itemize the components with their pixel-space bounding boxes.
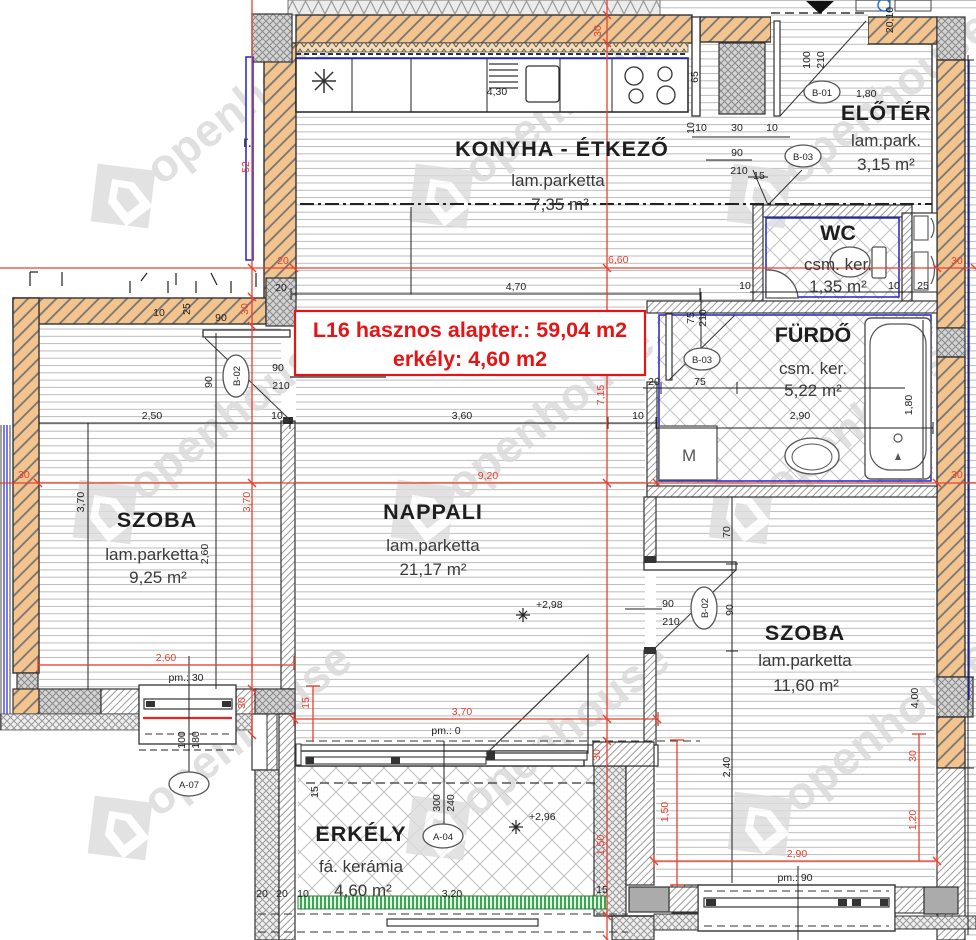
svg-text:KONYHA - ÉTKEZŐ: KONYHA - ÉTKEZŐ xyxy=(455,136,669,161)
svg-text:10: 10 xyxy=(888,280,900,292)
svg-text:csm. ker.: csm. ker. xyxy=(779,359,847,378)
svg-text:4,60 m²: 4,60 m² xyxy=(334,881,392,900)
svg-text:lam.parketta: lam.parketta xyxy=(758,651,852,670)
svg-text:2,50: 2,50 xyxy=(142,410,163,422)
svg-text:90: 90 xyxy=(731,147,743,159)
svg-text:15: 15 xyxy=(300,697,312,709)
svg-text:erkély: 4,60 m2: erkély: 4,60 m2 xyxy=(393,347,547,371)
svg-text:M: M xyxy=(682,446,696,465)
svg-text:90: 90 xyxy=(272,362,284,374)
svg-text:30: 30 xyxy=(236,697,248,709)
svg-text:1,35 m²: 1,35 m² xyxy=(809,277,867,296)
svg-text:fá. kerámia: fá. kerámia xyxy=(319,857,404,876)
svg-text:4,70: 4,70 xyxy=(506,281,527,293)
svg-text:3,70: 3,70 xyxy=(452,706,473,718)
svg-text:9,20: 9,20 xyxy=(478,470,499,482)
svg-text:5,22 m²: 5,22 m² xyxy=(784,381,842,400)
svg-text:4,00: 4,00 xyxy=(909,688,921,709)
svg-text:2,90: 2,90 xyxy=(790,410,811,422)
svg-text:1,50: 1,50 xyxy=(595,835,607,856)
svg-text:70: 70 xyxy=(721,526,733,538)
svg-text:FÜRDŐ: FÜRDŐ xyxy=(775,322,851,347)
svg-text:65: 65 xyxy=(689,71,701,83)
svg-text:ELŐTÉR: ELŐTÉR xyxy=(841,100,931,125)
svg-text:25: 25 xyxy=(181,303,193,315)
svg-text:75: 75 xyxy=(685,312,697,324)
svg-text:75: 75 xyxy=(694,376,706,388)
svg-text:SZOBA: SZOBA xyxy=(765,621,845,645)
svg-text:20: 20 xyxy=(275,282,287,294)
svg-text:A-04: A-04 xyxy=(433,832,453,843)
svg-text:52: 52 xyxy=(240,161,252,173)
svg-text:9,25 m²: 9,25 m² xyxy=(129,568,187,587)
svg-text:r.: r. xyxy=(243,134,252,151)
svg-text:10: 10 xyxy=(271,410,283,422)
svg-text:B-03: B-03 xyxy=(692,355,712,366)
svg-text:20: 20 xyxy=(648,376,660,388)
svg-text:lam.parketta: lam.parketta xyxy=(511,171,605,190)
svg-text:3,20: 3,20 xyxy=(442,888,463,900)
svg-text:pm.: 0: pm.: 0 xyxy=(431,725,460,737)
svg-text:30: 30 xyxy=(907,750,919,762)
svg-text:B-02: B-02 xyxy=(232,366,243,386)
svg-text:+2,98: +2,98 xyxy=(536,599,563,611)
svg-text:3,70: 3,70 xyxy=(241,492,253,513)
svg-text:4,30: 4,30 xyxy=(487,86,508,98)
svg-text:7,35 m²: 7,35 m² xyxy=(531,195,589,214)
svg-text:lam.park.: lam.park. xyxy=(851,131,921,150)
svg-text:6,60: 6,60 xyxy=(608,254,629,266)
svg-text:1,50: 1,50 xyxy=(659,802,671,823)
svg-text:30: 30 xyxy=(731,122,743,134)
svg-text:20: 20 xyxy=(277,255,289,267)
svg-text:2,90: 2,90 xyxy=(787,848,808,860)
svg-text:180: 180 xyxy=(190,731,202,749)
svg-text:210: 210 xyxy=(697,309,709,327)
svg-text:25: 25 xyxy=(917,280,929,292)
svg-text:10: 10 xyxy=(632,410,644,422)
svg-text:30: 30 xyxy=(18,469,30,481)
svg-text:90: 90 xyxy=(662,598,674,610)
svg-text:210: 210 xyxy=(730,165,748,177)
svg-text:90: 90 xyxy=(203,376,215,388)
svg-text:30: 30 xyxy=(239,303,251,315)
svg-text:2,60: 2,60 xyxy=(199,544,211,565)
svg-text:pm.: 90: pm.: 90 xyxy=(777,872,812,884)
svg-text:2,60: 2,60 xyxy=(156,652,177,664)
svg-text:90: 90 xyxy=(724,604,736,616)
svg-text:1,20: 1,20 xyxy=(907,810,919,831)
svg-text:SZOBA: SZOBA xyxy=(117,508,197,532)
svg-text:10: 10 xyxy=(739,280,751,292)
svg-text:L16 hasznos alapter.: 59,04 m2: L16 hasznos alapter.: 59,04 m2 xyxy=(313,318,627,342)
svg-text:NAPPALI: NAPPALI xyxy=(383,500,483,524)
svg-text:1,80: 1,80 xyxy=(856,88,877,100)
svg-text:20,10: 20,10 xyxy=(884,7,896,33)
svg-text:15: 15 xyxy=(309,786,321,798)
svg-text:+2,96: +2,96 xyxy=(529,811,556,823)
svg-text:B-01: B-01 xyxy=(812,88,832,99)
svg-text:3,15 m²: 3,15 m² xyxy=(857,155,915,174)
svg-text:15: 15 xyxy=(596,884,608,896)
svg-text:90: 90 xyxy=(215,312,227,324)
svg-text:240: 240 xyxy=(445,794,457,812)
svg-text:20: 20 xyxy=(256,888,268,900)
svg-text:csm. ker.: csm. ker. xyxy=(804,255,872,274)
svg-text:20: 20 xyxy=(276,888,288,900)
svg-text:210: 210 xyxy=(662,616,680,628)
svg-text:3,60: 3,60 xyxy=(452,410,473,422)
svg-text:30: 30 xyxy=(591,749,603,761)
svg-text:2,40: 2,40 xyxy=(721,757,733,778)
svg-text:210: 210 xyxy=(272,380,290,392)
svg-text:10: 10 xyxy=(153,307,165,319)
svg-text:lam.parketta: lam.parketta xyxy=(105,545,199,564)
svg-text:B-03: B-03 xyxy=(793,152,813,163)
svg-text:30: 30 xyxy=(592,25,604,37)
svg-text:10: 10 xyxy=(766,122,778,134)
svg-text:1,80: 1,80 xyxy=(903,395,915,416)
svg-text:ERKÉLY: ERKÉLY xyxy=(315,821,406,846)
svg-text:300: 300 xyxy=(431,794,443,812)
svg-text:11,60 m²: 11,60 m² xyxy=(773,676,839,695)
svg-text:30: 30 xyxy=(951,255,963,267)
svg-text:21,17 m²: 21,17 m² xyxy=(399,560,466,579)
svg-text:3,70: 3,70 xyxy=(75,492,87,513)
svg-text:10: 10 xyxy=(297,888,309,900)
svg-text:WC: WC xyxy=(820,221,856,245)
svg-text:30: 30 xyxy=(951,469,963,481)
svg-text:100: 100 xyxy=(801,51,813,69)
svg-text:100: 100 xyxy=(176,731,188,749)
svg-text:pm.: 30: pm.: 30 xyxy=(168,672,203,684)
svg-text:B-02: B-02 xyxy=(700,598,711,618)
svg-text:15: 15 xyxy=(753,170,765,182)
svg-text:7,15: 7,15 xyxy=(595,385,607,406)
svg-text:210: 210 xyxy=(815,51,827,69)
svg-text:lam.parketta: lam.parketta xyxy=(386,536,480,555)
svg-text:A-07: A-07 xyxy=(179,780,199,791)
svg-text:10: 10 xyxy=(685,122,697,134)
